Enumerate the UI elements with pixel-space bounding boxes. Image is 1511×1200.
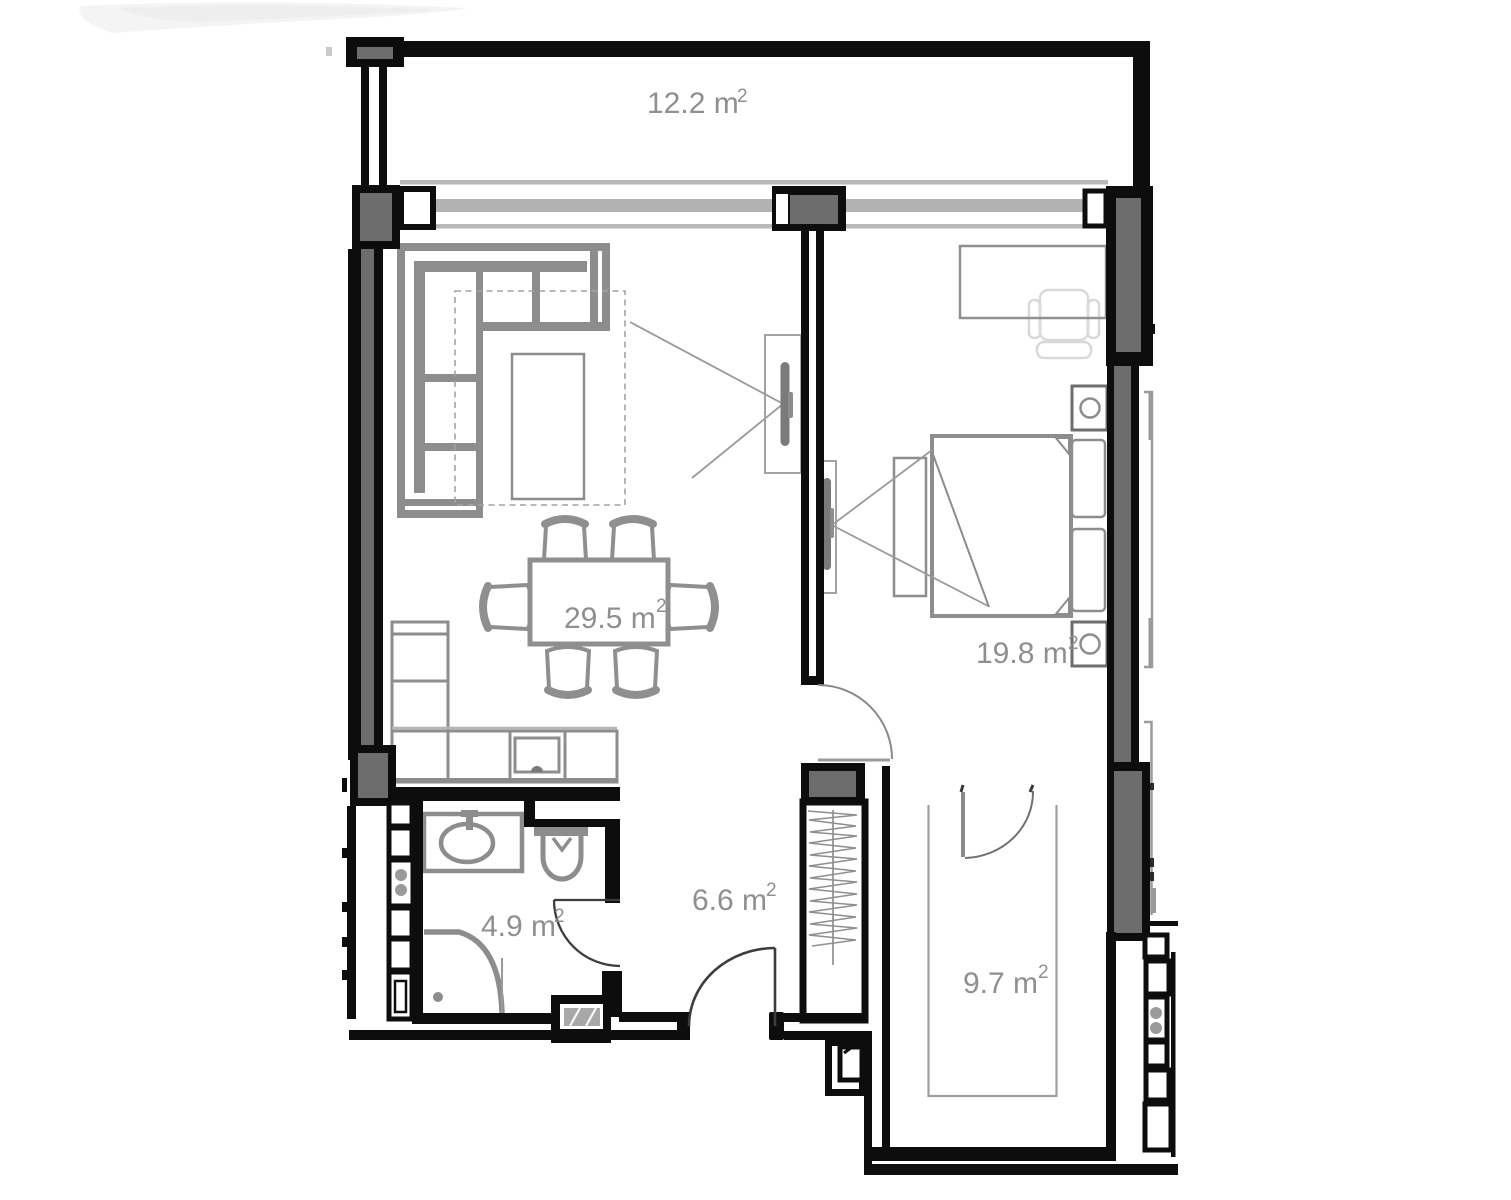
svg-text:4.9 m: 4.9 m [481, 910, 556, 943]
svg-text:2: 2 [766, 880, 777, 901]
svg-text:6.6 m: 6.6 m [692, 884, 767, 917]
svg-text:2: 2 [554, 906, 565, 927]
svg-text:12.2 m: 12.2 m [647, 87, 739, 120]
svg-text:29.5 m: 29.5 m [564, 602, 656, 635]
svg-text:2: 2 [656, 596, 667, 617]
svg-text:19.8 m: 19.8 m [976, 637, 1068, 670]
svg-text:2: 2 [737, 86, 748, 107]
svg-text:2: 2 [1068, 633, 1079, 654]
svg-text:2: 2 [1038, 962, 1049, 983]
svg-text:9.7 m: 9.7 m [963, 967, 1038, 1000]
